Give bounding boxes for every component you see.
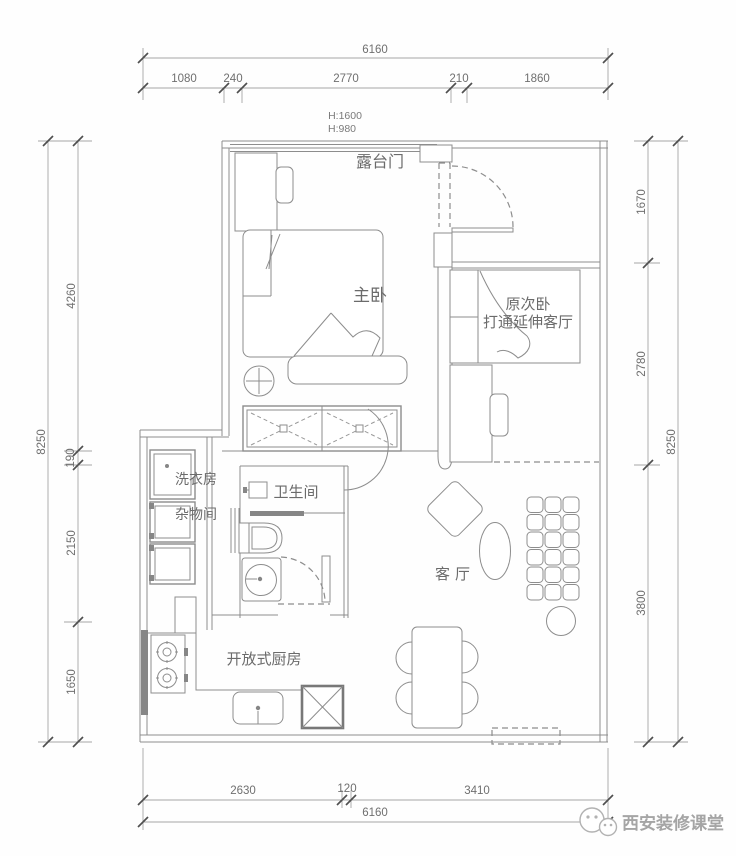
bed-end-bench: [288, 356, 407, 384]
terrace-door: [439, 163, 513, 232]
height-note-2: H:980: [328, 123, 356, 135]
dimension-bottom: 2630 120 3410 6160: [138, 748, 613, 830]
desk-2: [450, 365, 492, 462]
dim-left-seg0: 4260: [66, 283, 78, 309]
dim-right-total: 8250: [666, 429, 678, 455]
label-terrace-door: 露台门: [356, 153, 404, 171]
dim-top-seg1: 240: [223, 73, 242, 85]
dim-bottom-seg0: 2630: [230, 785, 256, 797]
label-storage: 杂物间: [175, 506, 217, 522]
side-table: [547, 607, 576, 636]
tall-cabinet: [175, 597, 196, 633]
sofa: [527, 497, 579, 600]
dim-bottom-total: 6160: [362, 807, 388, 819]
cabinet-2: [150, 544, 195, 584]
label-laundry: 洗衣房: [175, 471, 217, 487]
coffee-table: [480, 523, 511, 580]
dining: [396, 627, 560, 744]
dining-table: [412, 627, 462, 728]
living-room: [425, 479, 579, 635]
wardrobe: [243, 406, 401, 451]
watermark: 西安装修课堂: [580, 808, 724, 836]
label-master-bedroom: 主卧: [353, 286, 387, 305]
shelf: [250, 511, 304, 516]
dimension-top: 6160 1080 240 2770 210 1860 H:1600 H:980: [138, 44, 613, 135]
dim-right-seg0: 1670: [636, 189, 648, 215]
dim-top-seg2: 2770: [333, 73, 359, 85]
dimension-right: 1670 2780 3800 8250: [634, 136, 688, 747]
dim-top-seg3: 210: [449, 73, 468, 85]
desk-2-chair: [490, 394, 508, 436]
toilet-tank: [239, 523, 249, 553]
height-note-1: H:1600: [328, 110, 362, 122]
label-bathroom: 卫生间: [273, 484, 318, 501]
dim-right-seg1: 2780: [636, 351, 648, 377]
label-second-bedroom-2: 打通延伸客厅: [483, 314, 573, 331]
dim-left-seg3: 1650: [66, 669, 78, 695]
dim-bottom-seg2: 3410: [464, 785, 490, 797]
dim-top-seg0: 1080: [171, 73, 197, 85]
dim-top-seg4: 1860: [524, 73, 550, 85]
desk: [235, 153, 277, 231]
dim-bottom-seg1: 120: [337, 783, 356, 795]
label-living-room: 客厅: [435, 566, 475, 583]
label-kitchen: 开放式厨房: [226, 651, 301, 668]
dim-left-total: 8250: [36, 429, 48, 455]
floor-plan-canvas: 6160 1080 240 2770 210 1860 H:1600 H:980…: [0, 0, 736, 856]
dim-left-seg1: 190: [65, 448, 77, 467]
wall-basin: [249, 482, 267, 498]
bathroom-door-leaf: [322, 556, 330, 602]
dim-top-total: 6160: [362, 44, 388, 56]
accent-chair: [425, 479, 484, 538]
dimension-left: 8250 4260 190 2150 1650: [36, 136, 92, 747]
stove: [151, 635, 185, 693]
master-bedroom: [235, 153, 407, 490]
desk-chair: [276, 167, 293, 203]
label-second-bedroom-1: 原次卧: [505, 296, 550, 313]
watermark-text: 西安装修课堂: [622, 813, 724, 833]
dim-right-seg2: 3800: [636, 590, 648, 616]
floor-plan-svg: 6160 1080 240 2770 210 1860 H:1600 H:980…: [0, 0, 736, 856]
dim-left-seg2: 2150: [66, 530, 78, 556]
